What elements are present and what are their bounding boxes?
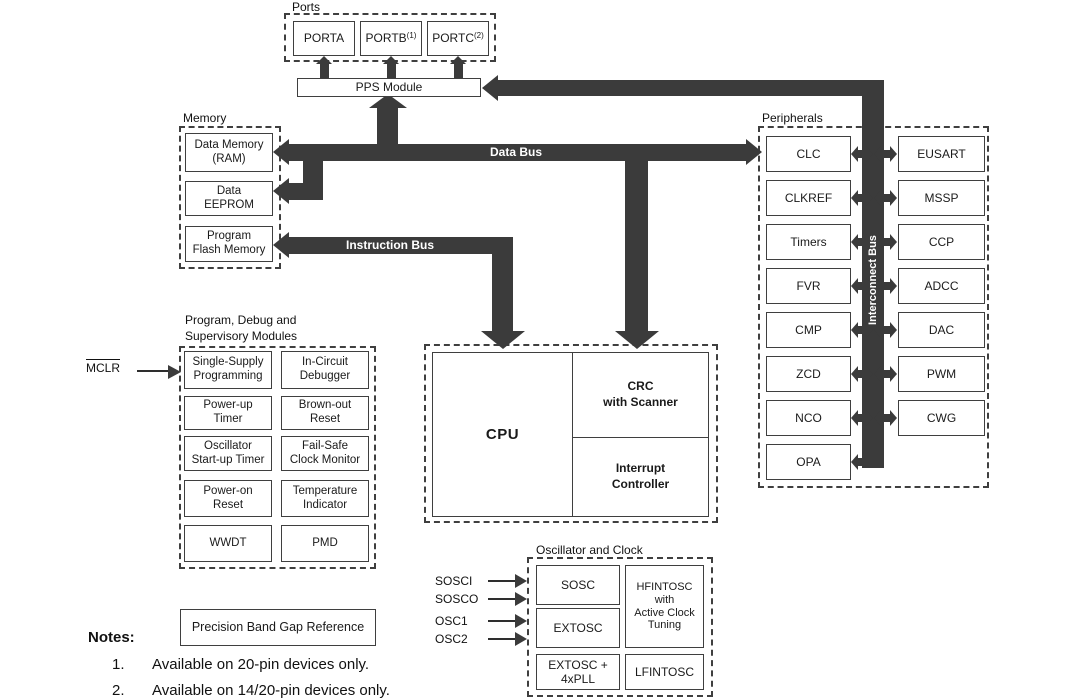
wwdt-block: WWDT: [184, 525, 272, 562]
lfintosc-block: LFINTOSC: [625, 654, 704, 690]
peripheral-cmp-block: CMP: [766, 312, 851, 348]
pps-to-portb-stem: [387, 62, 396, 78]
port-a-block: PORTA: [293, 21, 355, 56]
pmd-block: PMD: [281, 525, 369, 562]
mssp-bus-arrow-icon: [881, 194, 890, 202]
peripheral-opa-block: OPA: [766, 444, 851, 480]
sosco-signal-label: SOSCO: [435, 592, 478, 606]
oscillator-start-up-timer-block: Oscillator Start-up Timer: [184, 436, 272, 471]
mclr-text: MCLR: [86, 359, 120, 375]
peripheral-clc-block: CLC: [766, 136, 851, 172]
arrowhead-into-ram-icon: [273, 139, 289, 165]
hfintosc-block: HFINTOSC with Active Clock Tuning: [625, 565, 704, 648]
arrowhead-sosco-icon: [515, 592, 527, 606]
oscillator-group-label: Oscillator and Clock: [536, 543, 643, 559]
pps-to-portc-stem: [454, 62, 463, 78]
note-1-number: 1.: [112, 656, 125, 673]
mclr-line: [137, 370, 168, 372]
interconnect-to-pps-bar: [498, 80, 884, 96]
arrowhead-sosci-icon: [515, 574, 527, 588]
in-circuit-debugger-block: In-Circuit Debugger: [281, 351, 369, 389]
ports-group-label: Ports: [292, 0, 320, 16]
single-supply-programming-block: Single-Supply Programming: [184, 351, 272, 389]
osc2-line: [488, 638, 515, 640]
peripheral-adcc-block: ADCC: [898, 268, 985, 304]
fail-safe-clock-monitor-block: Fail-Safe Clock Monitor: [281, 436, 369, 471]
peripheral-timers-block: Timers: [766, 224, 851, 260]
clkref-bus-arrow-icon: [858, 194, 866, 202]
cpu-block: CPU CRC with Scanner Interrupt Controlle…: [432, 352, 709, 517]
zcd-bus-arrow-icon: [858, 370, 866, 378]
power-on-reset-block: Power-on Reset: [184, 480, 272, 517]
pps-module-block: PPS Module: [297, 78, 481, 97]
peripheral-clkref-block: CLKREF: [766, 180, 851, 216]
nco-bus-arrow-icon: [858, 414, 866, 422]
peripheral-mssp-block: MSSP: [898, 180, 985, 216]
sosci-signal-label: SOSCI: [435, 574, 472, 588]
interconnect-bus-label: Interconnect Bus: [862, 220, 884, 340]
extosc-4xpll-block: EXTOSC + 4xPLL: [536, 654, 620, 690]
mclr-signal-label: MCLR: [86, 361, 120, 375]
mcu-block-diagram: Data Bus Instruction Bus Interconnect Bu…: [0, 0, 1080, 700]
port-c-label: PORTC: [432, 31, 474, 45]
sosci-line: [488, 580, 515, 582]
temperature-indicator-block: Temperature Indicator: [281, 480, 369, 517]
eusart-bus-arrow-icon: [881, 150, 890, 158]
sosc-block: SOSC: [536, 565, 620, 605]
arrowhead-osc1-icon: [515, 614, 527, 628]
notes-heading: Notes:: [88, 629, 135, 646]
peripheral-pwm-block: PWM: [898, 356, 985, 392]
peripheral-zcd-block: ZCD: [766, 356, 851, 392]
arrowhead-into-peripherals-icon: [746, 139, 762, 165]
peripheral-fvr-block: FVR: [766, 268, 851, 304]
note-2-number: 2.: [112, 682, 125, 699]
osc1-line: [488, 620, 515, 622]
osc1-signal-label: OSC1: [435, 614, 468, 628]
arrowhead-into-flash-icon: [273, 232, 289, 258]
peripheral-eusart-block: EUSART: [898, 136, 985, 172]
arrowhead-down-data-icon: [615, 331, 659, 349]
note-2-text: Available on 14/20-pin devices only.: [152, 682, 390, 699]
program-flash-memory-block: Program Flash Memory: [185, 226, 273, 262]
arrowhead-into-eeprom-icon: [273, 178, 289, 204]
cwg-bus-arrow-icon: [881, 414, 890, 422]
arrowhead-osc2-icon: [515, 632, 527, 646]
power-up-timer-block: Power-up Timer: [184, 396, 272, 430]
sosco-line: [488, 598, 515, 600]
data-bus-to-eeprom-arm: [289, 183, 323, 200]
osc2-signal-label: OSC2: [435, 632, 468, 646]
port-a-label: PORTA: [304, 31, 344, 45]
data-memory-ram-block: Data Memory (RAM): [185, 133, 273, 172]
opa-bus-arrow-icon: [858, 458, 868, 466]
port-b-label: PORTB: [366, 31, 407, 45]
cpu-right-column: CRC with Scanner Interrupt Controller: [573, 353, 708, 516]
memory-group-label: Memory: [183, 111, 226, 127]
port-b-note-ref: (1): [407, 31, 417, 40]
port-c-block: PORTC(2): [427, 21, 489, 56]
data-bus-label: Data Bus: [446, 144, 586, 161]
arrowhead-into-pps-icon: [482, 75, 498, 101]
cpu-core-cell: CPU: [433, 353, 573, 516]
arrowhead-mclr-icon: [168, 365, 181, 379]
cpu-label: CPU: [486, 426, 519, 443]
brown-out-reset-block: Brown-out Reset: [281, 396, 369, 430]
debug-group-label: Program, Debug and Supervisory Modules: [185, 313, 297, 344]
peripheral-ccp-block: CCP: [898, 224, 985, 260]
band-gap-reference-block: Precision Band Gap Reference: [180, 609, 376, 646]
note-1-text: Available on 20-pin devices only.: [152, 656, 369, 673]
peripheral-nco-block: NCO: [766, 400, 851, 436]
clc-bus-arrow-icon: [858, 150, 866, 158]
port-c-note-ref: (2): [474, 31, 484, 40]
peripheral-cwg-block: CWG: [898, 400, 985, 436]
arrowhead-down-instruction-icon: [481, 331, 525, 349]
pwm-bus-arrow-icon: [881, 370, 890, 378]
port-b-block: PORTB(1): [360, 21, 422, 56]
data-bus-to-cpu-stem: [625, 161, 648, 331]
data-bus-to-pps-stem: [377, 106, 398, 146]
extosc-block: EXTOSC: [536, 608, 620, 648]
instruction-bus-label: Instruction Bus: [320, 237, 460, 254]
interrupt-controller-cell: Interrupt Controller: [573, 438, 708, 516]
peripheral-dac-block: DAC: [898, 312, 985, 348]
instruction-bus-stem: [492, 237, 513, 331]
peripherals-group-label: Peripherals: [762, 111, 823, 127]
crc-with-scanner-cell: CRC with Scanner: [573, 353, 708, 438]
data-eeprom-block: Data EEPROM: [185, 181, 273, 216]
pps-to-porta-stem: [320, 62, 329, 78]
